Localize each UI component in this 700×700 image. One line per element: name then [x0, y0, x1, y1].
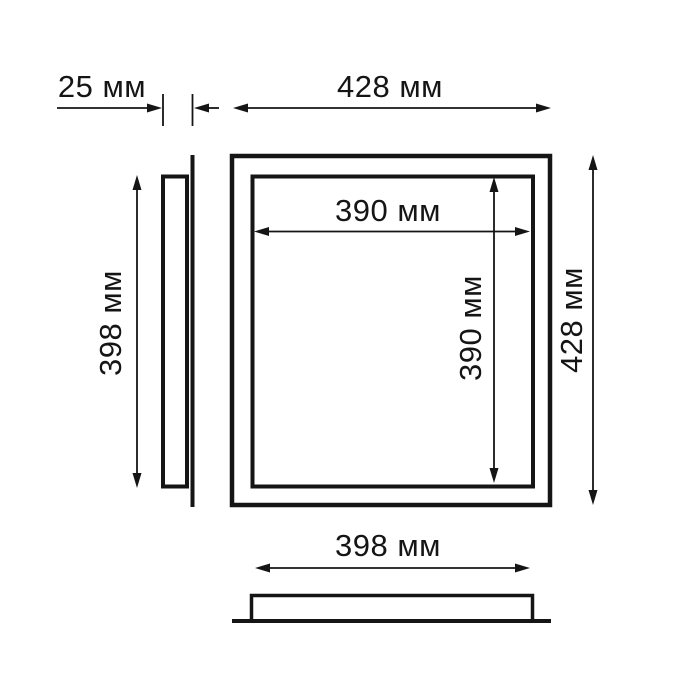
opening-height-label: 390 мм	[453, 275, 488, 381]
outer-width-label: 428 мм	[337, 69, 443, 104]
arrowhead-left-icon	[254, 227, 269, 236]
arrowhead-down-icon	[589, 490, 598, 505]
bottom-view-body	[252, 596, 533, 622]
arrowhead-right-icon	[515, 564, 530, 573]
opening-width-label: 390 мм	[335, 193, 441, 228]
arrowhead-up-icon	[490, 177, 499, 192]
frame-depth-label: 25 мм	[58, 69, 146, 104]
outer-height-label: 428 мм	[554, 267, 589, 373]
side-view	[163, 155, 193, 507]
arrowhead-left-icon	[255, 564, 270, 573]
body-width-label: 398 мм	[335, 528, 441, 563]
arrowhead-left-icon	[233, 104, 248, 113]
technical-drawing: 25 мм 428 мм 398 мм 390 мм	[0, 0, 700, 700]
arrowhead-right-icon	[536, 104, 551, 113]
side-view-body	[163, 177, 187, 487]
arrowhead-down-icon	[133, 473, 142, 488]
bottom-view	[232, 596, 551, 622]
arrowhead-up-icon	[133, 175, 142, 190]
arrowhead-right-icon	[147, 104, 162, 113]
dimension-body-width: 398 мм	[255, 528, 530, 573]
arrowhead-up-icon	[589, 155, 598, 170]
dimension-opening-height: 390 мм	[453, 177, 499, 483]
body-height-label: 398 мм	[93, 270, 128, 376]
dimension-opening-width: 390 мм	[254, 193, 530, 236]
arrowhead-down-icon	[490, 468, 499, 483]
dimension-frame-depth: 25 мм	[57, 69, 219, 126]
dimension-outer-width: 428 мм	[233, 69, 551, 113]
arrowhead-right-icon	[515, 227, 530, 236]
dimension-body-height: 398 мм	[93, 175, 142, 488]
dimension-outer-height: 428 мм	[554, 155, 598, 505]
arrowhead-left-icon	[194, 104, 209, 113]
